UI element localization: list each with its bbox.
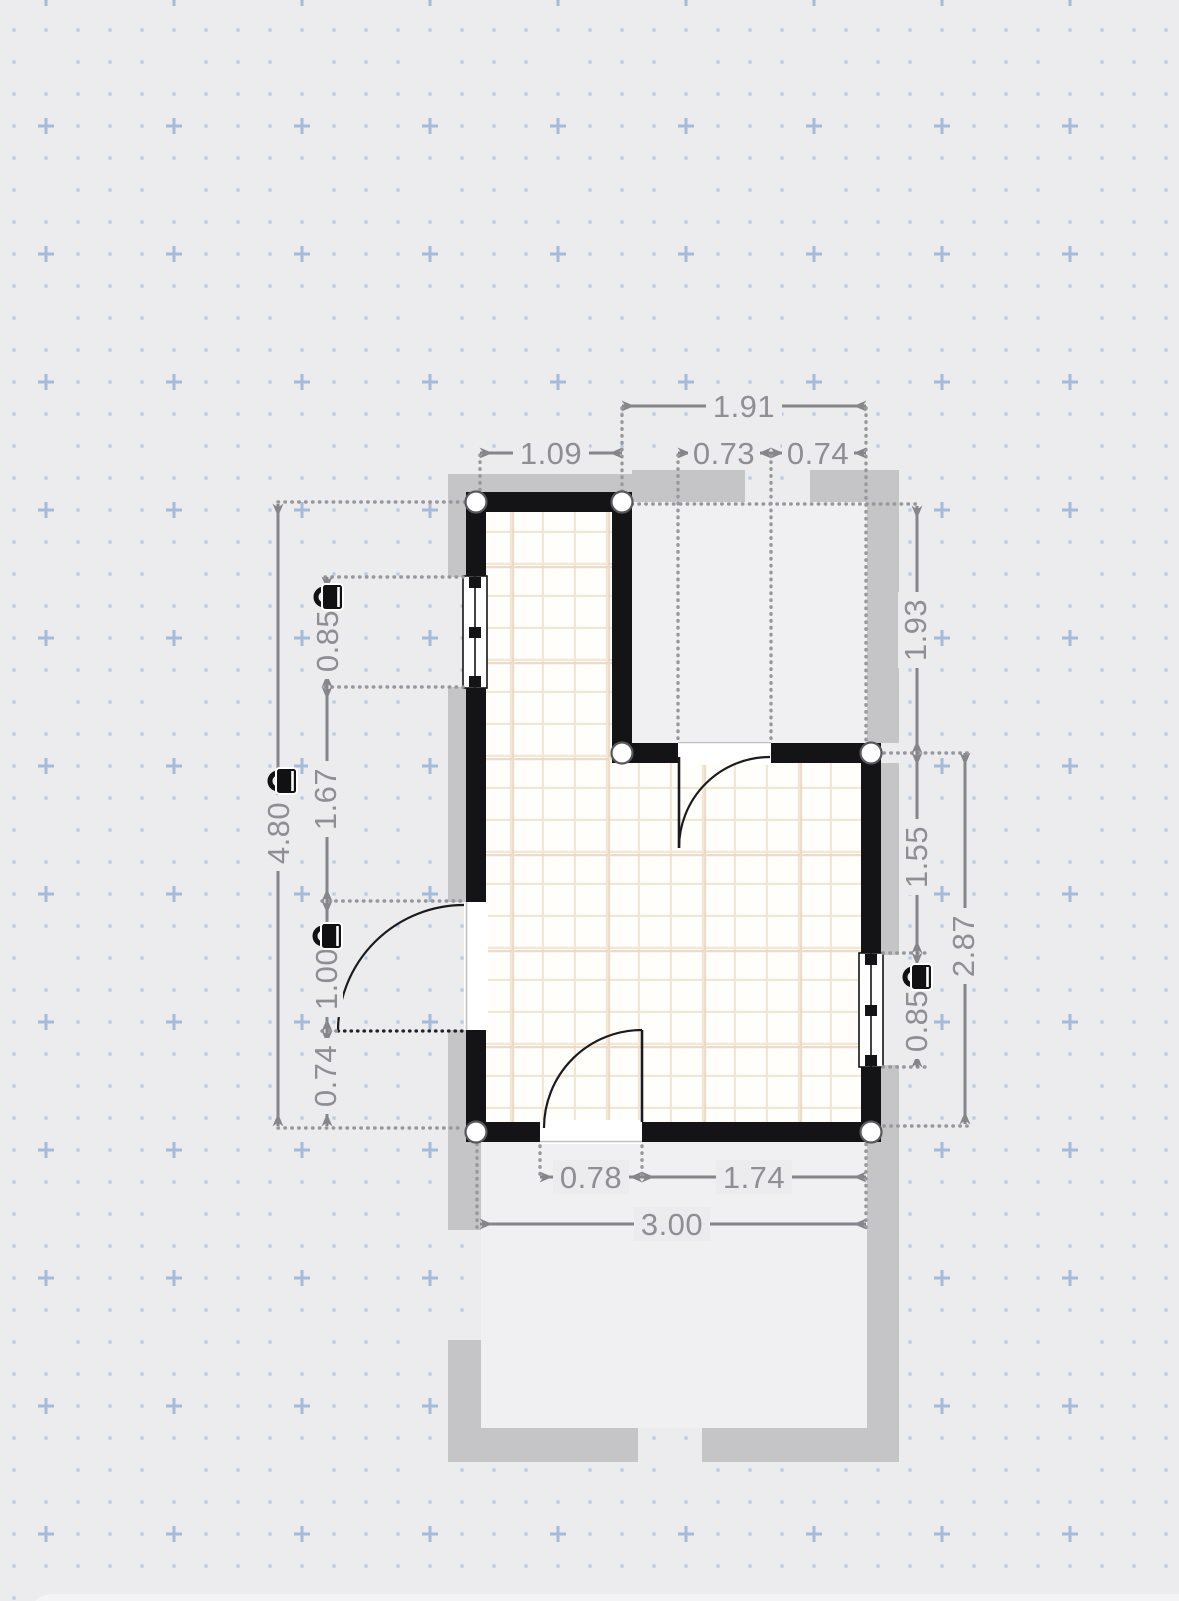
lock-icon-right-window[interactable] bbox=[905, 964, 932, 990]
wall-segment[interactable] bbox=[642, 1122, 881, 1142]
wall-segment[interactable] bbox=[466, 687, 486, 902]
dim-label-left-middle[interactable]: 1.67 bbox=[308, 768, 343, 830]
dim-label-top-total[interactable]: 1.91 bbox=[713, 389, 775, 424]
adjacent-room-floor[interactable] bbox=[481, 1142, 867, 1428]
wall-segment[interactable] bbox=[861, 743, 881, 955]
dim-label-left-total[interactable]: 4.80 bbox=[261, 802, 296, 864]
dim-label-top-right[interactable]: 0.74 bbox=[787, 436, 849, 471]
dim-label-bottom-right[interactable]: 1.74 bbox=[723, 1160, 785, 1195]
adjacent-room-top-right[interactable] bbox=[632, 470, 899, 743]
door-opening[interactable] bbox=[464, 902, 488, 1030]
floorplan-canvas[interactable]: 1.91 1.09 0.73 0.74 0.78 1.74 3.00 4.80 … bbox=[0, 0, 1179, 1601]
adjacent-room-floor[interactable] bbox=[632, 502, 867, 743]
wall-corner-node[interactable] bbox=[612, 743, 633, 764]
wall-corner-node[interactable] bbox=[612, 492, 633, 513]
dim-label-right-total[interactable]: 2.87 bbox=[946, 915, 981, 977]
dim-label-bottom-door[interactable]: 0.78 bbox=[560, 1160, 622, 1195]
wall-segment[interactable] bbox=[466, 492, 632, 512]
dim-label-top-left[interactable]: 1.09 bbox=[520, 436, 582, 471]
door-opening[interactable] bbox=[540, 1120, 642, 1144]
adjacent-room-bottom[interactable] bbox=[448, 1142, 899, 1462]
gray-wall-segment[interactable] bbox=[448, 1428, 638, 1462]
wall-corner-node[interactable] bbox=[466, 1122, 487, 1143]
door-opening[interactable] bbox=[678, 741, 771, 765]
dim-label-top-door[interactable]: 0.73 bbox=[693, 436, 755, 471]
window-right[interactable] bbox=[859, 953, 883, 1067]
bottom-sheet-edge[interactable] bbox=[30, 1594, 1179, 1601]
gray-wall-segment[interactable] bbox=[632, 470, 745, 502]
dim-label-left-lower[interactable]: 0.74 bbox=[308, 1045, 343, 1107]
dim-label-left-door[interactable]: 1.00 bbox=[309, 948, 344, 1010]
dim-label-right-window[interactable]: 0.85 bbox=[899, 990, 934, 1052]
gray-wall-segment[interactable] bbox=[810, 470, 899, 502]
gray-wall-segment[interactable] bbox=[702, 1428, 867, 1462]
dim-label-right-upper[interactable]: 1.93 bbox=[898, 599, 933, 661]
dim-label-right-middle[interactable]: 1.55 bbox=[899, 826, 934, 888]
wall-corner-node[interactable] bbox=[861, 743, 882, 764]
lock-icon-left-window[interactable] bbox=[316, 584, 343, 610]
wall-segment[interactable] bbox=[612, 492, 632, 763]
window-left[interactable] bbox=[463, 576, 487, 688]
lock-icon-left-total[interactable] bbox=[270, 768, 297, 794]
gray-wall-segment[interactable] bbox=[867, 1142, 899, 1462]
gray-wall-segment[interactable] bbox=[867, 502, 899, 743]
wall-corner-node[interactable] bbox=[466, 492, 487, 513]
lock-icon-left-door[interactable] bbox=[315, 923, 342, 949]
dim-label-left-window[interactable]: 0.85 bbox=[310, 610, 345, 672]
wall-corner-node[interactable] bbox=[861, 1122, 882, 1143]
dim-label-bottom-total[interactable]: 3.00 bbox=[641, 1207, 703, 1242]
